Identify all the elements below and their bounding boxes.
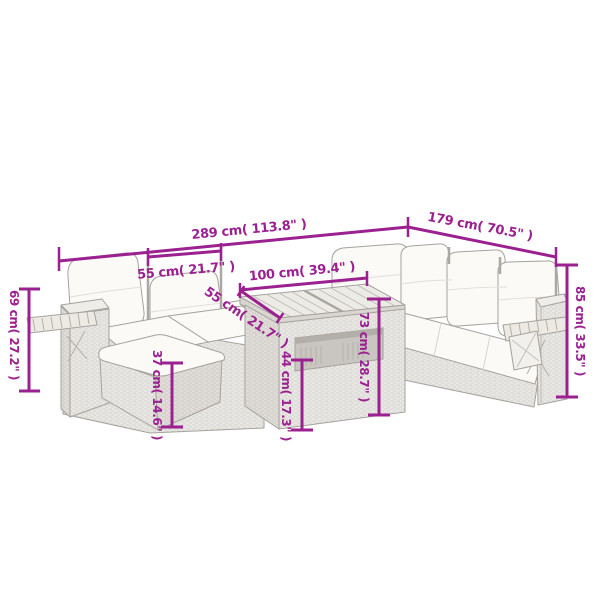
dim-line-armrest-height — [19, 289, 40, 391]
right-sofa-section — [384, 244, 568, 407]
product-dimension-diagram: 289 cm( 113.8" ) 179 cm( 70.5" ) 55 cm( … — [0, 0, 600, 600]
dim-label-table-shelf-height: 44 cm( 17.3" ) — [279, 351, 293, 441]
dim-label-table-height: 73 cm( 28.7" ) — [357, 312, 371, 402]
dim-label-backrest-height: 85 cm( 33.5" ) — [573, 286, 587, 376]
dim-label-footstool-height: 37 cm( 14.6" ) — [150, 350, 164, 440]
dim-label-armrest-height: 69 cm( 27.2" ) — [7, 290, 21, 380]
diagram-canvas — [0, 0, 600, 600]
back-cushion — [401, 244, 453, 320]
